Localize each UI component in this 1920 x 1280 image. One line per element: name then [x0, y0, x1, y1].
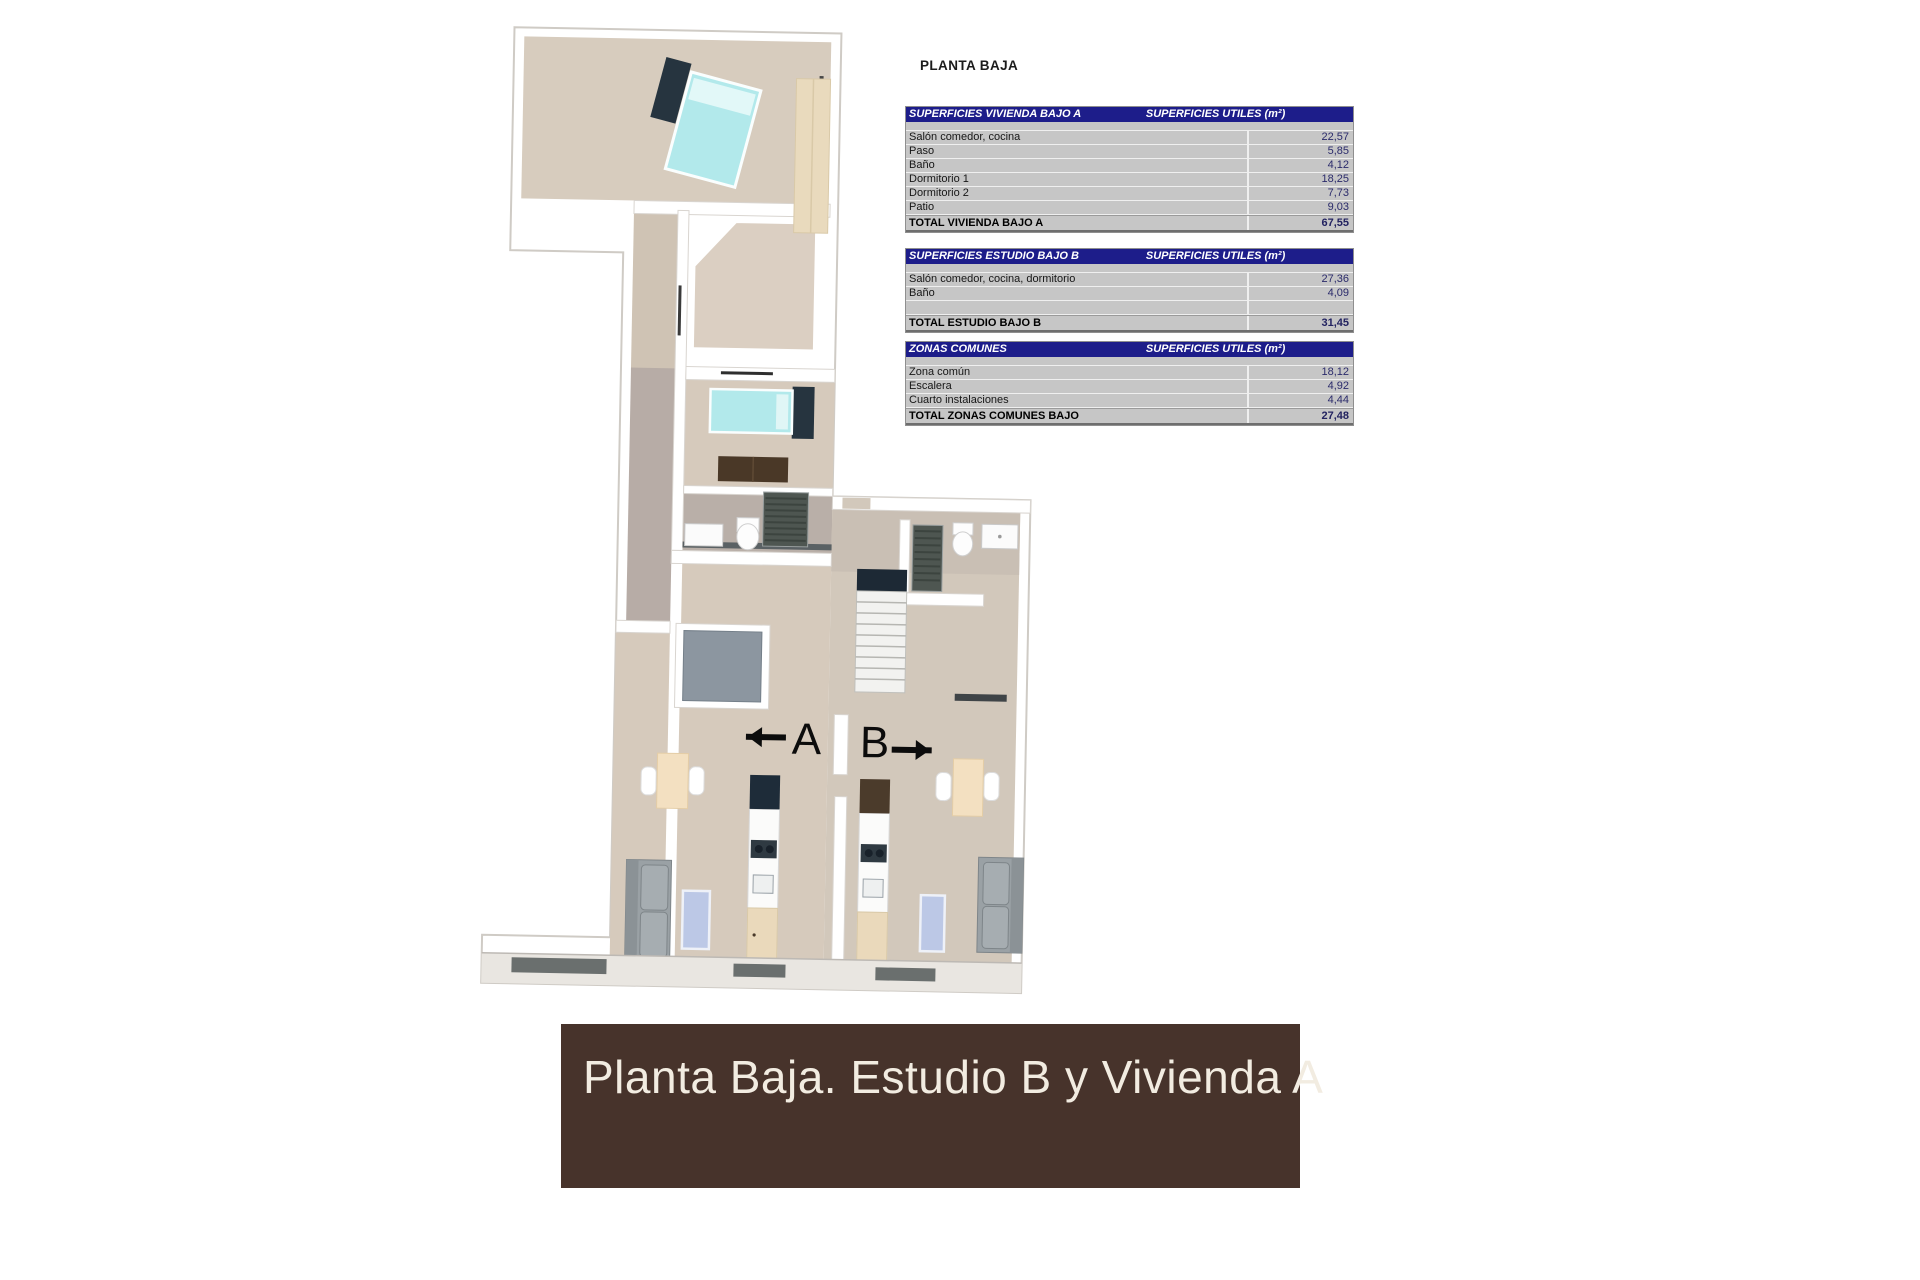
table-row: Patio 9,03: [906, 201, 1353, 215]
rug-a: [682, 891, 710, 950]
table-title: SUPERFICIES ESTUDIO BAJO B: [906, 249, 1146, 264]
table-row: Baño 4,12: [906, 159, 1353, 173]
table-units-header: SUPERFICIES UTILES (m²): [1146, 249, 1353, 264]
wardrobe-1: [794, 79, 831, 234]
table-row: Zona común 18,12: [906, 366, 1353, 380]
wardrobe-2: [718, 456, 788, 482]
table-header: ZONAS COMUNES SUPERFICIES UTILES (m²): [906, 342, 1353, 357]
table-zonas-comunes: ZONAS COMUNES SUPERFICIES UTILES (m²) Zo…: [905, 341, 1354, 426]
table-title: ZONAS COMUNES: [906, 342, 1146, 357]
caption-text: Planta Baja. Estudio B y Vivienda A: [583, 1050, 1323, 1104]
spacer-row: [906, 357, 1353, 366]
table-header: SUPERFICIES VIVIENDA BAJO A SUPERFICIES …: [906, 107, 1353, 122]
table-estudio-b: SUPERFICIES ESTUDIO BAJO B SUPERFICIES U…: [905, 248, 1354, 333]
table-row: Salón comedor, cocina, dormitorio 27,36: [906, 273, 1353, 287]
table-vivienda-a: SUPERFICIES VIVIENDA BAJO A SUPERFICIES …: [905, 106, 1354, 233]
table-row: Baño 4,09: [906, 287, 1353, 301]
table-row: Dormitorio 1 18,25: [906, 173, 1353, 187]
bed-single: [710, 385, 815, 439]
caption-banner: Planta Baja. Estudio B y Vivienda A: [561, 1024, 1300, 1188]
staircase: [855, 569, 907, 693]
table-row: Salón comedor, cocina 22,57: [906, 131, 1353, 145]
kitchen-b: [857, 779, 891, 963]
unit-b-label: B: [859, 718, 889, 768]
spacer-row: [906, 264, 1353, 273]
table-row: Cuarto instalaciones 4,44: [906, 394, 1353, 408]
table-units-header: SUPERFICIES UTILES (m²): [1146, 342, 1353, 357]
empty-row: [906, 301, 1353, 315]
page: A B PLANTA BAJA SUPERFICIES VIVIENDA BAJ…: [0, 0, 1920, 1280]
door-opening: [842, 498, 870, 510]
kitchen-a: [747, 775, 781, 964]
table-total-row: TOTAL VIVIENDA BAJO A 67,55: [906, 215, 1353, 232]
table-row: Escalera 4,92: [906, 380, 1353, 394]
rug-b: [920, 895, 945, 951]
unit-a-label: A: [791, 715, 822, 765]
table-header: SUPERFICIES ESTUDIO BAJO B SUPERFICIES U…: [906, 249, 1353, 264]
table-total-row: TOTAL ESTUDIO BAJO B 31,45: [906, 315, 1353, 332]
sofa-b: [977, 857, 1024, 953]
table-row: Paso 5,85: [906, 145, 1353, 159]
table-row: Dormitorio 2 7,73: [906, 187, 1353, 201]
table-title: SUPERFICIES VIVIENDA BAJO A: [906, 107, 1146, 122]
spacer-row: [906, 122, 1353, 131]
sofa-a: [625, 859, 672, 960]
page-title: PLANTA BAJA: [920, 58, 1018, 73]
table-units-header: SUPERFICIES UTILES (m²): [1146, 107, 1353, 122]
table-total-row: TOTAL ZONAS COMUNES BAJO 27,48: [906, 408, 1353, 425]
utility-square: [674, 623, 770, 709]
